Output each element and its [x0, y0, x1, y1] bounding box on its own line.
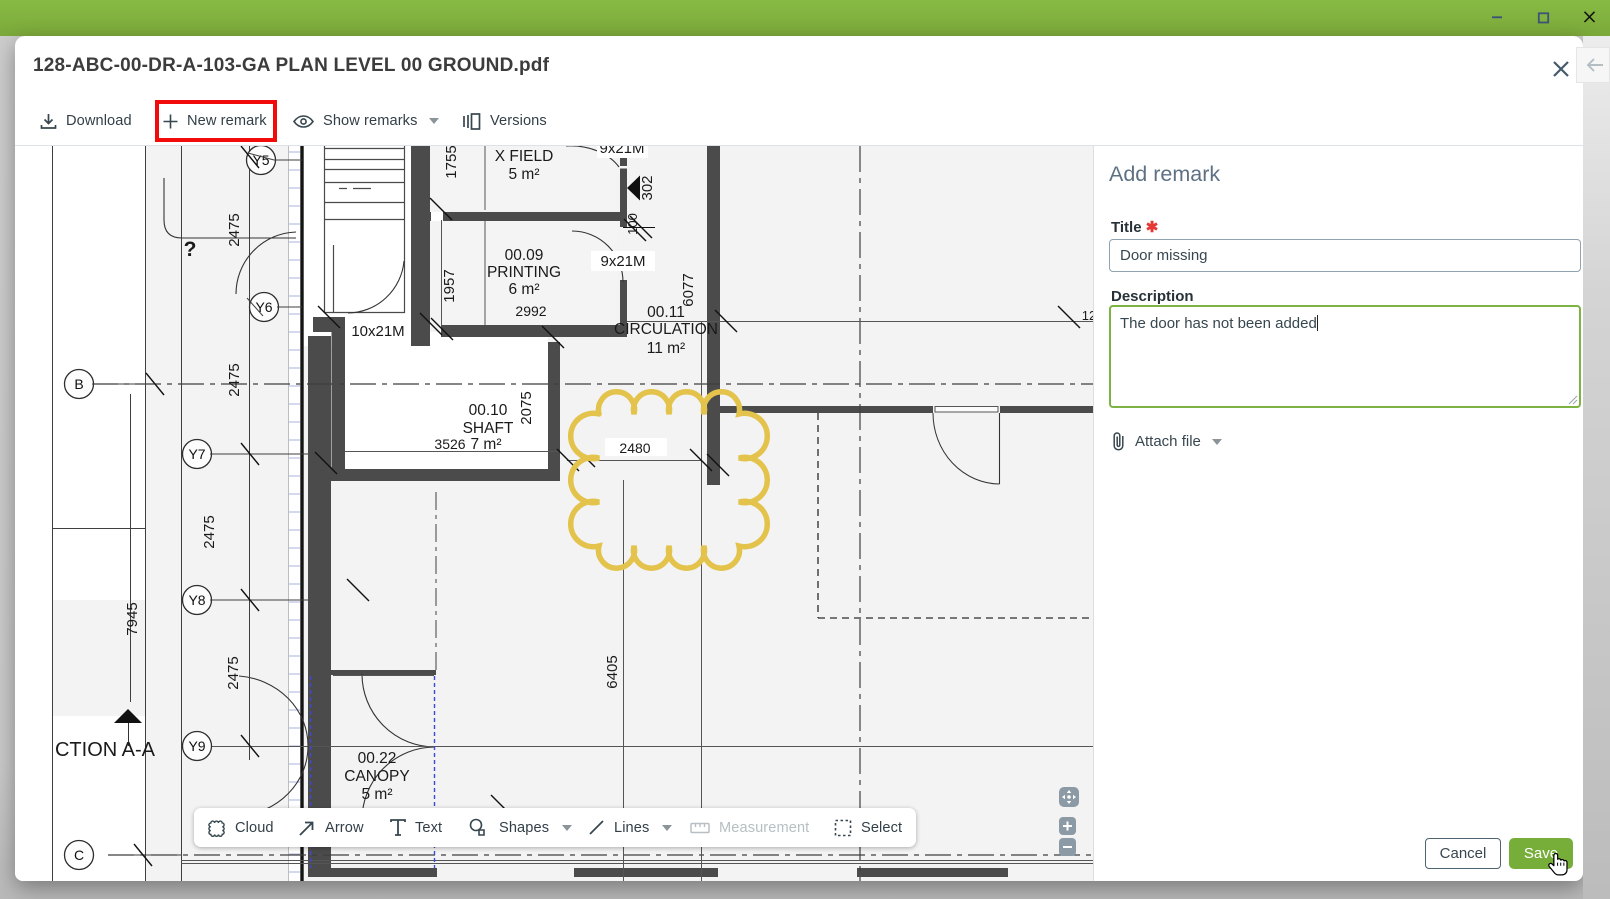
svg-text:CIRCULATION: CIRCULATION: [614, 321, 718, 338]
svg-text:7945: 7945: [124, 602, 141, 635]
svg-text:2992: 2992: [515, 303, 546, 319]
svg-text:6 m²: 6 m²: [509, 281, 540, 298]
svg-text:11 m²: 11 m²: [647, 340, 685, 357]
svg-text:CANOPY: CANOPY: [344, 768, 409, 785]
svg-text:9x21M: 9x21M: [599, 146, 644, 157]
svg-text:10x21M: 10x21M: [351, 323, 404, 340]
svg-text:?: ?: [184, 238, 197, 261]
svg-text:Y8: Y8: [188, 592, 205, 608]
svg-text:CTION A-A: CTION A-A: [55, 739, 156, 761]
svg-text:302: 302: [639, 175, 656, 200]
svg-text:1957: 1957: [441, 269, 458, 302]
svg-text:100: 100: [625, 213, 640, 235]
svg-text:2475: 2475: [226, 213, 243, 246]
svg-text:PRINTING: PRINTING: [487, 264, 561, 281]
svg-text:5 m²: 5 m²: [362, 786, 393, 803]
svg-text:Y6: Y6: [255, 299, 272, 315]
svg-text:5 m²: 5 m²: [509, 166, 540, 183]
svg-text:2475: 2475: [225, 656, 242, 689]
svg-text:6077: 6077: [680, 273, 697, 306]
svg-text:2075: 2075: [518, 391, 535, 424]
svg-text:12: 12: [1082, 308, 1093, 323]
svg-text:2480: 2480: [619, 440, 650, 456]
svg-text:7 m²: 7 m²: [471, 436, 502, 453]
svg-text:9x21M: 9x21M: [600, 253, 645, 270]
svg-text:2475: 2475: [201, 515, 218, 548]
svg-text:00.22: 00.22: [358, 750, 397, 767]
svg-text:00.09: 00.09: [505, 247, 544, 264]
svg-text:X FIELD: X FIELD: [495, 148, 554, 165]
svg-text:3526: 3526: [434, 436, 465, 452]
svg-text:00.10: 00.10: [469, 402, 508, 419]
svg-text:Y9: Y9: [188, 738, 205, 754]
svg-text:Y7: Y7: [188, 446, 205, 462]
svg-text:C: C: [74, 847, 84, 863]
svg-text:6405: 6405: [604, 655, 621, 688]
svg-text:2475: 2475: [226, 363, 243, 396]
svg-text:SHAFT: SHAFT: [463, 420, 514, 437]
svg-text:B: B: [74, 376, 83, 392]
svg-text:1755: 1755: [443, 146, 460, 179]
